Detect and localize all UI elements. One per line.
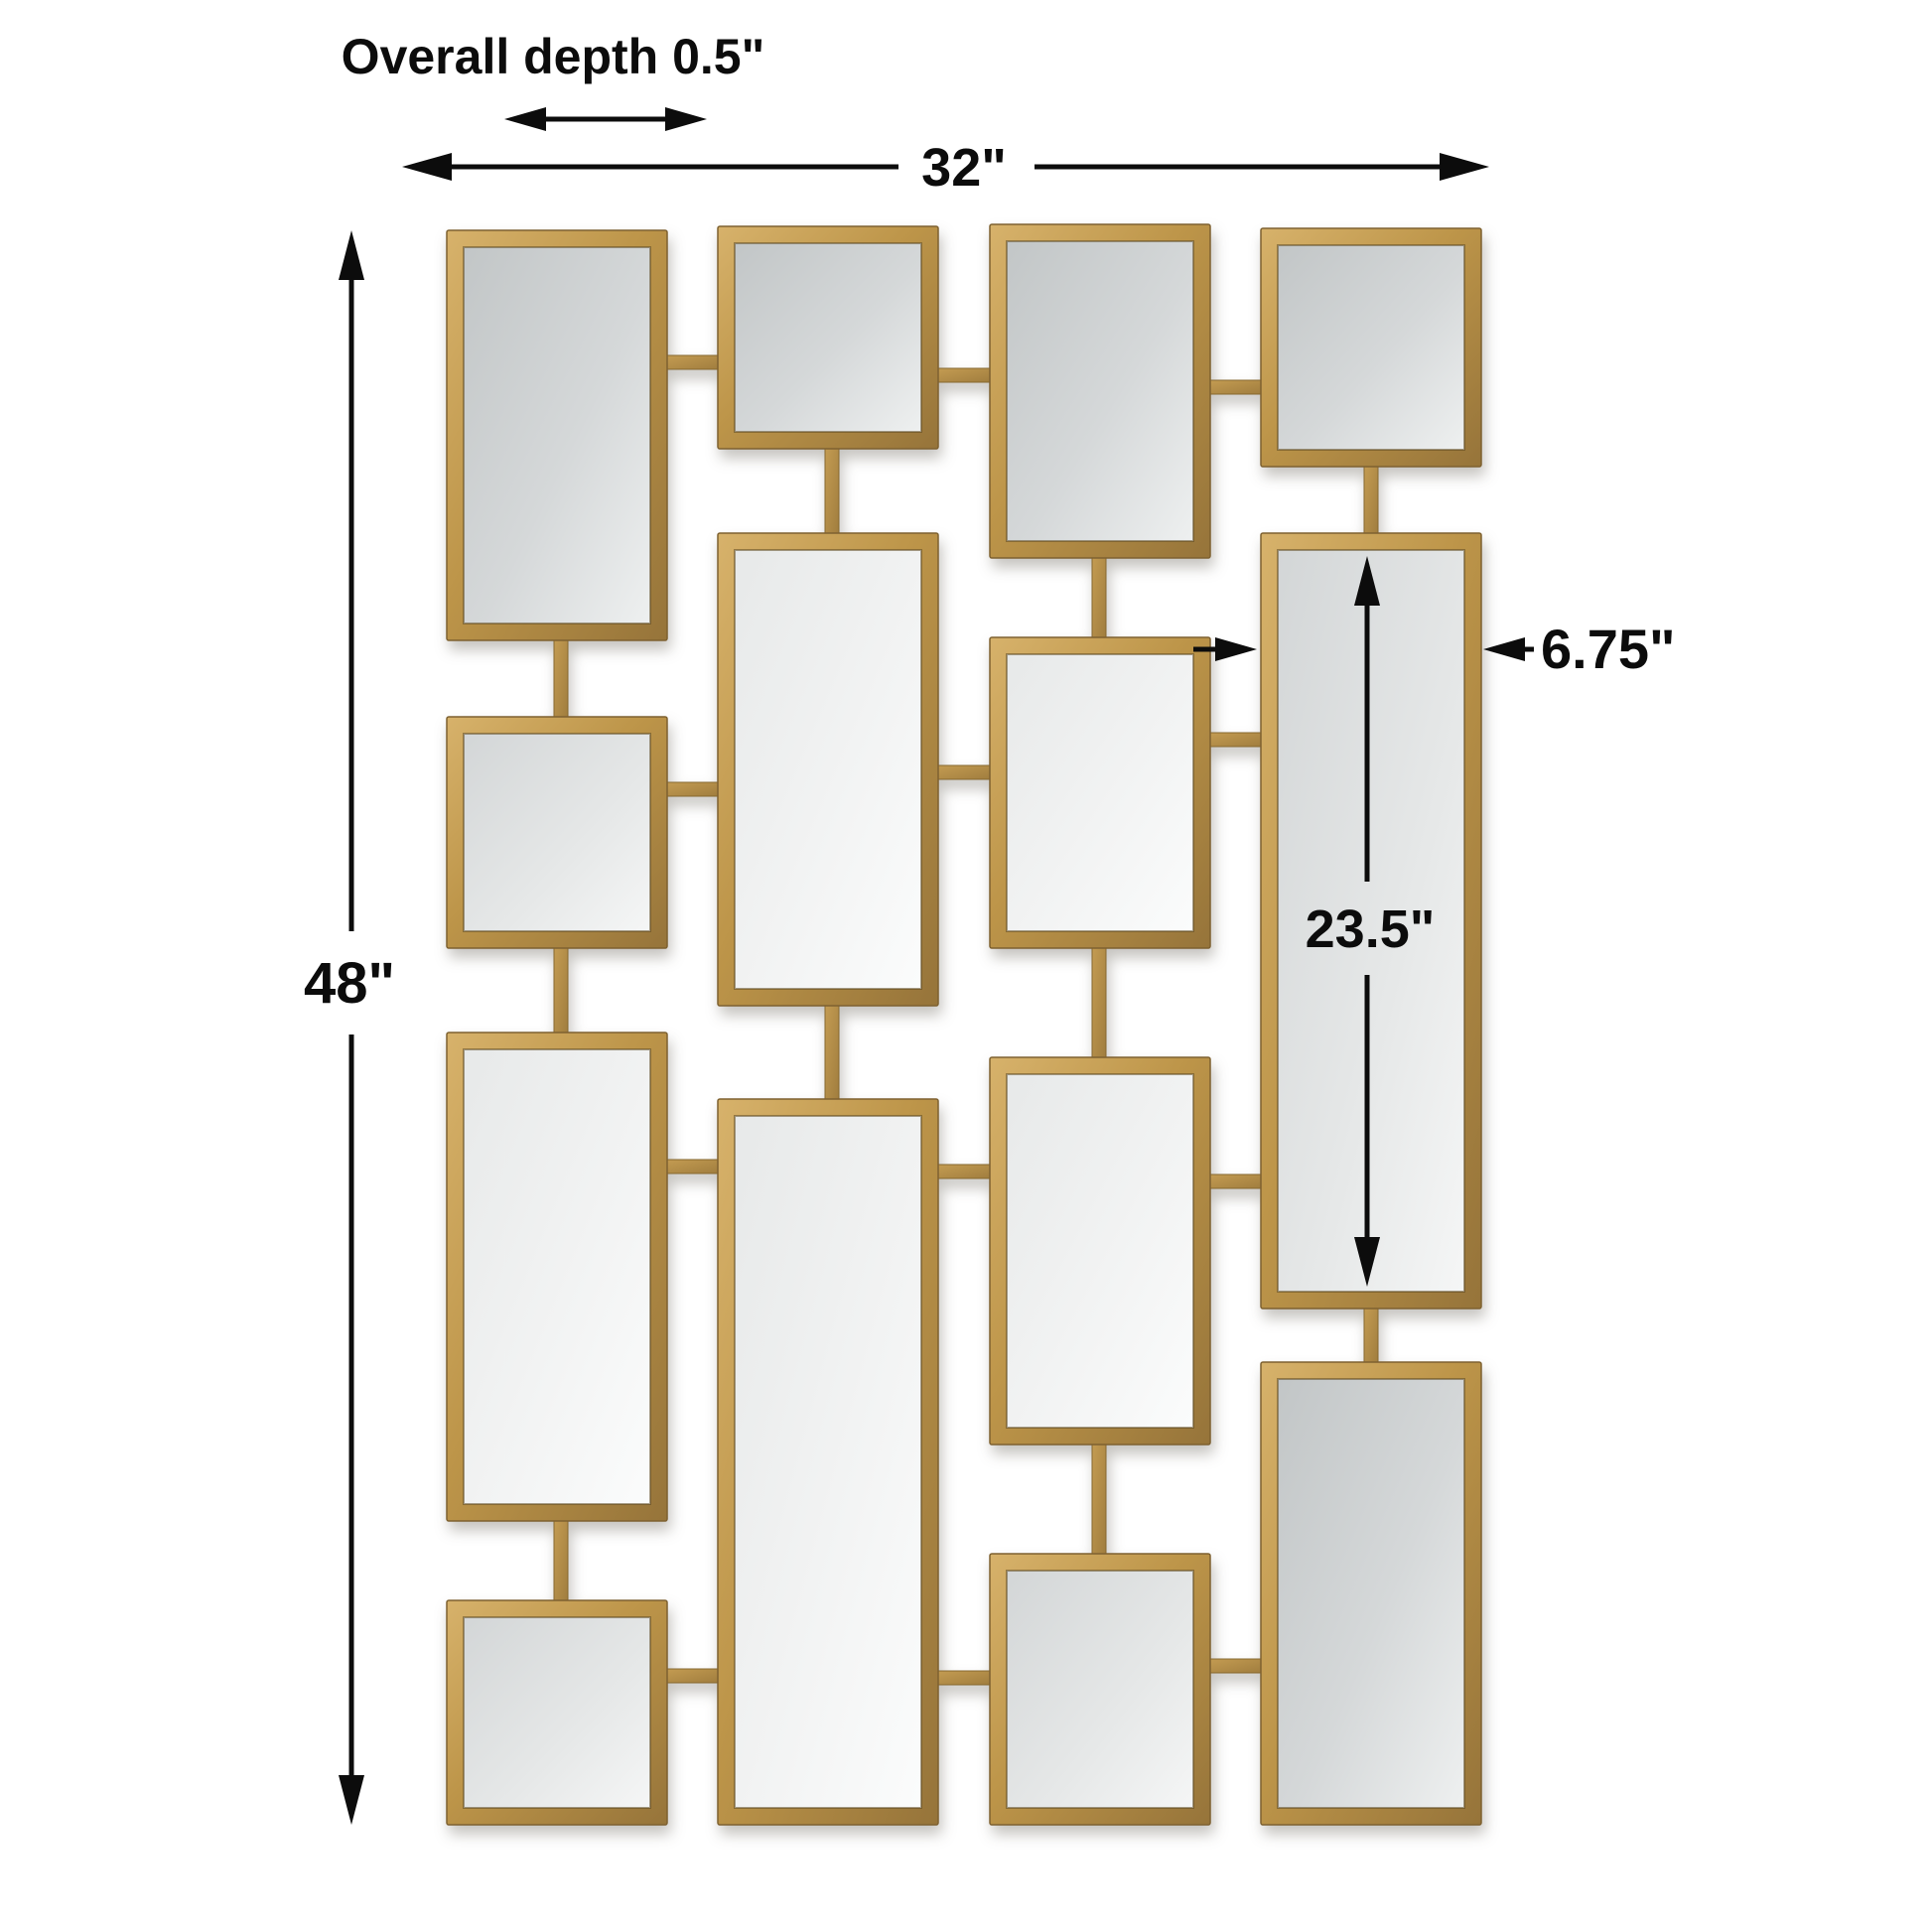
connector-link bbox=[665, 1669, 720, 1683]
connector-link bbox=[936, 1165, 992, 1178]
panel-glass bbox=[464, 734, 650, 931]
panel-width-right-pointing-head bbox=[1215, 637, 1257, 661]
width-arrow-left-head bbox=[402, 153, 452, 181]
connector-link bbox=[665, 782, 720, 796]
mirror-panel bbox=[718, 533, 938, 1006]
width-arrow-right-head bbox=[1440, 153, 1489, 181]
mirror-panel bbox=[990, 637, 1210, 948]
panel-glass bbox=[1007, 1074, 1193, 1428]
height-arrow-bottom-head bbox=[339, 1775, 364, 1825]
overall-depth-label: Overall depth 0.5" bbox=[342, 29, 765, 84]
connector-stem bbox=[1092, 1443, 1106, 1556]
connector-link bbox=[1208, 733, 1263, 747]
panel-glass bbox=[464, 1049, 650, 1504]
mirror-panel bbox=[447, 1033, 667, 1521]
connector-stem bbox=[1092, 556, 1106, 639]
mirror-panel bbox=[990, 1057, 1210, 1445]
connector-link bbox=[1208, 380, 1263, 394]
overall-width-label: 32" bbox=[921, 138, 1007, 198]
panel-glass bbox=[735, 243, 921, 432]
mirror-panel bbox=[447, 1600, 667, 1825]
mirror-dimension-diagram: Overall depth 0.5" 32" 48" bbox=[0, 0, 1932, 1932]
mirror-panel bbox=[718, 1099, 938, 1825]
connector-stem bbox=[1364, 1307, 1378, 1364]
connector-stem bbox=[1364, 465, 1378, 535]
depth-arrow-right-head bbox=[665, 107, 707, 131]
panel-width-left-pointing-head bbox=[1483, 637, 1525, 661]
mirror-panel bbox=[1261, 228, 1481, 467]
mirror-panel bbox=[1261, 1362, 1481, 1825]
connector-stem bbox=[554, 1519, 568, 1602]
panel-glass bbox=[735, 550, 921, 989]
connector-link bbox=[665, 1160, 720, 1173]
panel-glass bbox=[1278, 1379, 1464, 1808]
connector-stem bbox=[825, 1004, 839, 1101]
height-dimension: 48" bbox=[304, 230, 395, 1825]
mirror-panel bbox=[990, 224, 1210, 558]
connector-link bbox=[1208, 1659, 1263, 1673]
connector-stem bbox=[825, 447, 839, 535]
connector-link bbox=[1208, 1174, 1263, 1188]
panel-glass bbox=[735, 1116, 921, 1808]
overall-height-label: 48" bbox=[304, 951, 395, 1016]
mirror-panel bbox=[447, 717, 667, 948]
connector-link bbox=[936, 368, 992, 382]
diagram-canvas: Overall depth 0.5" 32" 48" bbox=[0, 0, 1932, 1932]
panel-glass bbox=[1007, 1571, 1193, 1808]
connector-stem bbox=[554, 946, 568, 1035]
connector-stem bbox=[1092, 946, 1106, 1059]
mirror-composition bbox=[447, 224, 1481, 1825]
panel-glass bbox=[464, 247, 650, 623]
connector-link bbox=[936, 765, 992, 779]
mirror-panel bbox=[718, 226, 938, 449]
panel-height-label: 23.5" bbox=[1306, 899, 1436, 959]
connector-link bbox=[936, 1671, 992, 1685]
panel-glass bbox=[1278, 245, 1464, 450]
height-arrow-top-head bbox=[339, 230, 364, 280]
panel-glass bbox=[1007, 654, 1193, 931]
depth-arrow-left-head bbox=[504, 107, 546, 131]
connector-stem bbox=[554, 638, 568, 719]
panel-width-label: 6.75" bbox=[1541, 618, 1676, 680]
mirror-panel bbox=[990, 1554, 1210, 1825]
connector-link bbox=[665, 355, 720, 369]
panel-glass bbox=[464, 1617, 650, 1808]
depth-dimension: Overall depth 0.5" bbox=[342, 29, 765, 131]
mirror-panel bbox=[447, 230, 667, 640]
width-dimension: 32" bbox=[402, 138, 1489, 198]
panel-glass bbox=[1007, 241, 1193, 541]
